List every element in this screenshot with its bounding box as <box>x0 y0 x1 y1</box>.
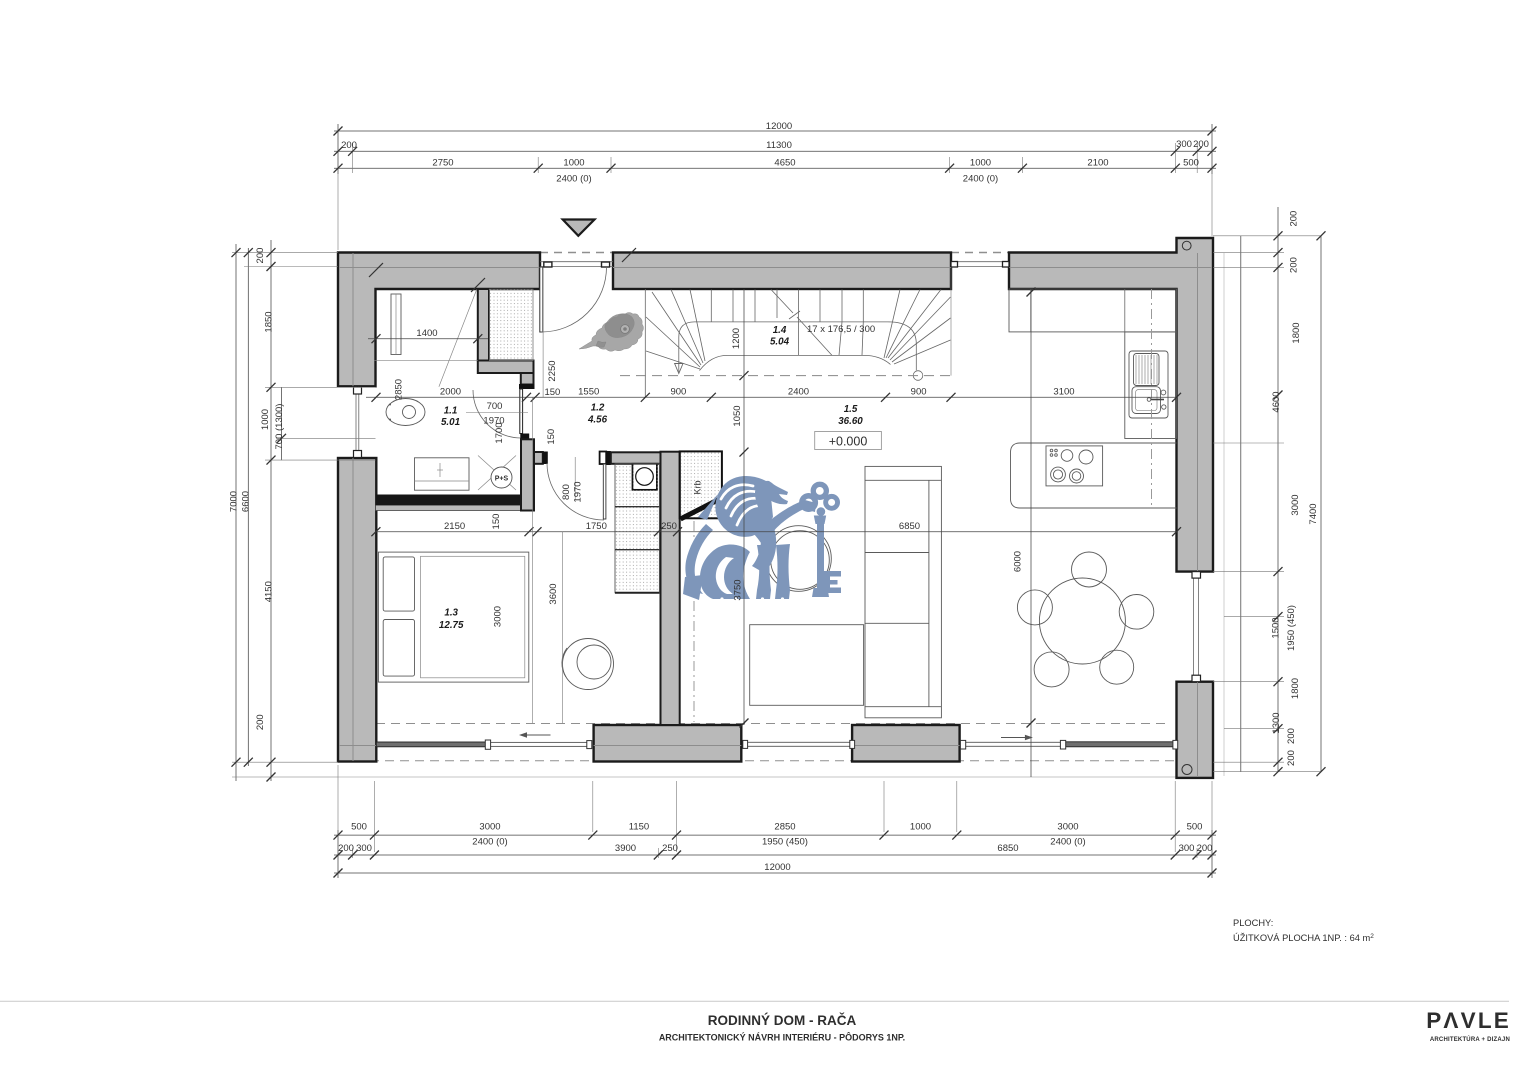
svg-text:1150: 1150 <box>629 822 649 833</box>
svg-text:3000: 3000 <box>493 606 504 627</box>
svg-text:3900: 3900 <box>615 843 636 854</box>
svg-text:200: 200 <box>1193 139 1209 150</box>
svg-text:150: 150 <box>491 514 502 530</box>
svg-text:+0.000: +0.000 <box>829 435 868 449</box>
svg-text:150: 150 <box>544 387 560 398</box>
svg-text:1400: 1400 <box>416 328 437 339</box>
svg-text:12000: 12000 <box>764 862 790 873</box>
svg-text:1850: 1850 <box>264 311 275 332</box>
svg-text:P+S: P+S <box>495 476 509 483</box>
svg-text:17 x 176,5 / 300: 17 x 176,5 / 300 <box>807 324 875 335</box>
svg-text:ARCHITEKTONICKÝ NÁVRH INTERIÉR: ARCHITEKTONICKÝ NÁVRH INTERIÉRU - PÔDORY… <box>659 1032 905 1043</box>
svg-text:300: 300 <box>356 843 372 854</box>
svg-text:2400: 2400 <box>788 387 809 398</box>
svg-text:200: 200 <box>1197 843 1213 854</box>
svg-text:800: 800 <box>561 484 572 500</box>
svg-text:500: 500 <box>1183 158 1199 169</box>
svg-text:2750: 2750 <box>432 158 453 169</box>
svg-text:500: 500 <box>1187 822 1203 833</box>
svg-text:3100: 3100 <box>1053 387 1074 398</box>
svg-text:150: 150 <box>546 429 557 445</box>
svg-text:5.01: 5.01 <box>441 417 460 428</box>
svg-text:300: 300 <box>1179 843 1195 854</box>
svg-text:700 (1300): 700 (1300) <box>274 404 285 450</box>
svg-text:1550: 1550 <box>578 387 599 398</box>
svg-text:2100: 2100 <box>1087 158 1108 169</box>
svg-text:2150: 2150 <box>444 521 465 532</box>
svg-text:1200: 1200 <box>731 328 742 349</box>
svg-text:4650: 4650 <box>774 158 795 169</box>
svg-text:1500: 1500 <box>1271 617 1282 638</box>
svg-text:4150: 4150 <box>264 581 275 602</box>
svg-text:200: 200 <box>1286 728 1297 744</box>
svg-text:1970: 1970 <box>573 481 584 502</box>
svg-text:12.75: 12.75 <box>439 620 464 631</box>
svg-text:6000: 6000 <box>1013 551 1024 572</box>
svg-text:PLOCHY:: PLOCHY: <box>1233 918 1273 928</box>
svg-text:1050: 1050 <box>732 405 743 426</box>
svg-text:200: 200 <box>1289 257 1300 273</box>
svg-text:1.5: 1.5 <box>844 404 858 415</box>
svg-text:12000: 12000 <box>766 121 792 132</box>
svg-text:1000: 1000 <box>970 158 991 169</box>
svg-text:1950 (450): 1950 (450) <box>1286 605 1297 651</box>
svg-text:1.4: 1.4 <box>773 325 787 336</box>
svg-text:200: 200 <box>1289 211 1300 227</box>
svg-text:7000: 7000 <box>229 491 240 512</box>
svg-text:250: 250 <box>661 521 677 532</box>
svg-text:1.3: 1.3 <box>444 608 458 619</box>
svg-text:3000: 3000 <box>1057 822 1078 833</box>
svg-text:2400 (0): 2400 (0) <box>1050 837 1085 848</box>
svg-text:200: 200 <box>1286 750 1297 766</box>
svg-text:500: 500 <box>351 822 367 833</box>
svg-text:1750: 1750 <box>586 521 607 532</box>
svg-text:4600: 4600 <box>1271 391 1282 412</box>
svg-text:4.56: 4.56 <box>587 415 608 426</box>
svg-text:1950 (450): 1950 (450) <box>762 837 808 848</box>
svg-text:6850: 6850 <box>997 843 1018 854</box>
svg-text:200: 200 <box>255 248 266 264</box>
svg-text:200: 200 <box>255 714 266 730</box>
svg-text:2400 (0): 2400 (0) <box>556 174 591 185</box>
svg-text:1.1: 1.1 <box>444 406 458 417</box>
svg-text:3600: 3600 <box>548 583 559 604</box>
svg-text:1700: 1700 <box>494 422 505 443</box>
svg-text:2850: 2850 <box>774 822 795 833</box>
svg-text:ARCHITEKTÚRA + DIZAJN: ARCHITEKTÚRA + DIZAJN <box>1430 1036 1510 1043</box>
svg-text:1000: 1000 <box>563 158 584 169</box>
svg-text:36.60: 36.60 <box>838 416 863 427</box>
svg-text:11300: 11300 <box>766 140 792 151</box>
svg-text:1.2: 1.2 <box>591 403 605 414</box>
svg-text:PΛVLE: PΛVLE <box>1426 1008 1511 1033</box>
svg-text:6850: 6850 <box>899 521 920 532</box>
svg-text:1000: 1000 <box>910 822 931 833</box>
svg-text:1300: 1300 <box>1271 712 1282 733</box>
svg-text:1800: 1800 <box>1291 322 1302 343</box>
svg-text:3000: 3000 <box>479 822 500 833</box>
svg-text:900: 900 <box>911 387 927 398</box>
svg-text:Krb: Krb <box>693 480 703 494</box>
svg-text:7400: 7400 <box>1308 503 1319 524</box>
svg-text:3750: 3750 <box>733 579 744 600</box>
svg-text:200: 200 <box>341 140 357 151</box>
svg-text:2850: 2850 <box>394 379 405 400</box>
svg-text:1800: 1800 <box>1290 678 1301 699</box>
svg-text:2400 (0): 2400 (0) <box>963 174 998 185</box>
svg-text:2400 (0): 2400 (0) <box>472 837 507 848</box>
svg-text:300: 300 <box>1176 139 1192 150</box>
svg-text:250: 250 <box>662 843 678 854</box>
svg-text:5.04: 5.04 <box>770 337 790 348</box>
svg-text:900: 900 <box>670 387 686 398</box>
svg-text:2250: 2250 <box>547 360 558 381</box>
svg-text:200: 200 <box>338 843 354 854</box>
svg-text:2000: 2000 <box>440 387 461 398</box>
svg-text:3000: 3000 <box>1290 494 1301 515</box>
svg-text:1000: 1000 <box>260 409 271 430</box>
svg-text:RODINNÝ DOM - RAČA: RODINNÝ DOM - RAČA <box>708 1013 857 1028</box>
svg-text:700: 700 <box>487 401 503 412</box>
svg-text:ÚŽITKOVÁ PLOCHA 1NP. : 64 m2: ÚŽITKOVÁ PLOCHA 1NP. : 64 m2 <box>1233 933 1374 943</box>
svg-text:6600: 6600 <box>241 491 252 512</box>
